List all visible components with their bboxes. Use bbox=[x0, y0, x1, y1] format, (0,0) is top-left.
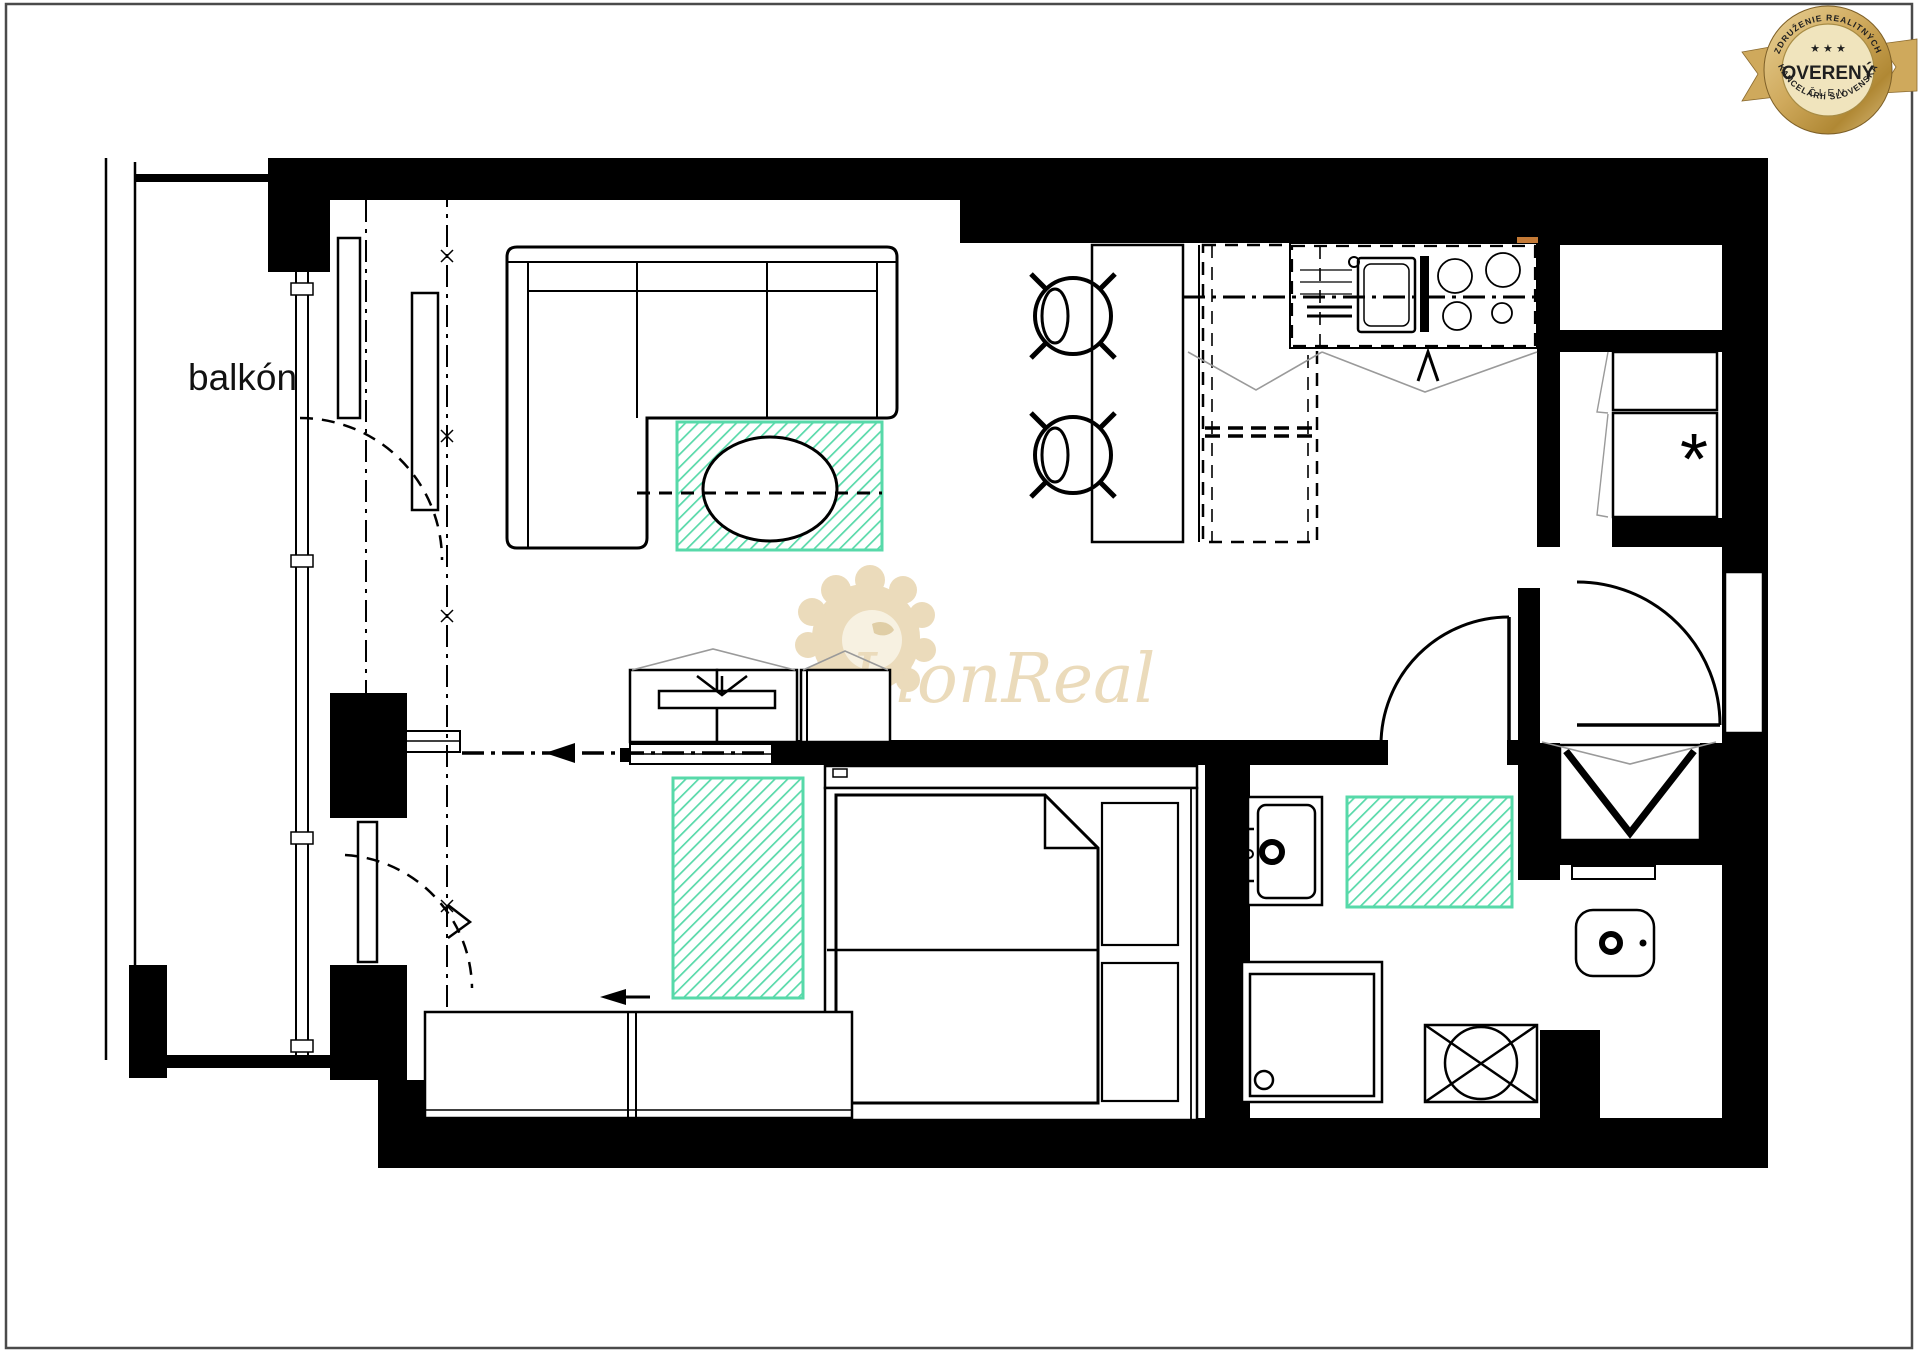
floor-plan-page: LionReal balkón bbox=[0, 0, 1920, 1356]
bedroom bbox=[425, 766, 1197, 1120]
bathroom-rug bbox=[1347, 797, 1512, 907]
badge-main: OVERENÝ bbox=[1782, 62, 1875, 84]
bar-counter bbox=[1092, 245, 1183, 542]
kitchen: * bbox=[1031, 237, 1717, 542]
badge-stars: ★ ★ ★ bbox=[1810, 43, 1846, 55]
axis-ticks bbox=[441, 250, 453, 1052]
badge-sub: ČLEN bbox=[1809, 86, 1848, 99]
entrance-door bbox=[1577, 572, 1763, 733]
bathroom-door bbox=[1381, 617, 1509, 745]
bedroom-window-panel bbox=[358, 822, 377, 962]
left-arrow-icon bbox=[600, 989, 626, 1005]
bedroom-rug bbox=[673, 778, 803, 998]
dresser-handle bbox=[659, 691, 775, 708]
watermark-text: LionReal bbox=[848, 640, 1155, 719]
floor-plan-drawing: LionReal balkón bbox=[0, 0, 1920, 1356]
living-room bbox=[507, 247, 897, 764]
left-arrow-icon bbox=[545, 743, 575, 763]
coffee-table bbox=[703, 437, 837, 541]
washbasin bbox=[1240, 797, 1322, 905]
sliding-panel bbox=[338, 238, 360, 418]
freezer-asterisk: * bbox=[1680, 420, 1708, 500]
fridge: * bbox=[1597, 352, 1717, 517]
verified-badge: ZDRUŽENIE REALITNÝCH KANCELÁRIÍ SLOVENSK… bbox=[1742, 6, 1917, 134]
dresser bbox=[801, 670, 890, 742]
toilet bbox=[1572, 866, 1655, 976]
bed bbox=[825, 766, 1197, 1120]
accent-mark bbox=[1517, 237, 1538, 243]
pillow bbox=[1102, 963, 1178, 1101]
pillow bbox=[1102, 803, 1178, 945]
cabinet-swing bbox=[1188, 352, 1322, 390]
washing-machine bbox=[1425, 1025, 1537, 1102]
wardrobe bbox=[425, 1012, 852, 1118]
balcony: balkón bbox=[106, 158, 331, 1078]
balcony-label: balkón bbox=[188, 357, 297, 398]
shower bbox=[1242, 962, 1382, 1102]
entry-closet bbox=[1542, 742, 1716, 840]
